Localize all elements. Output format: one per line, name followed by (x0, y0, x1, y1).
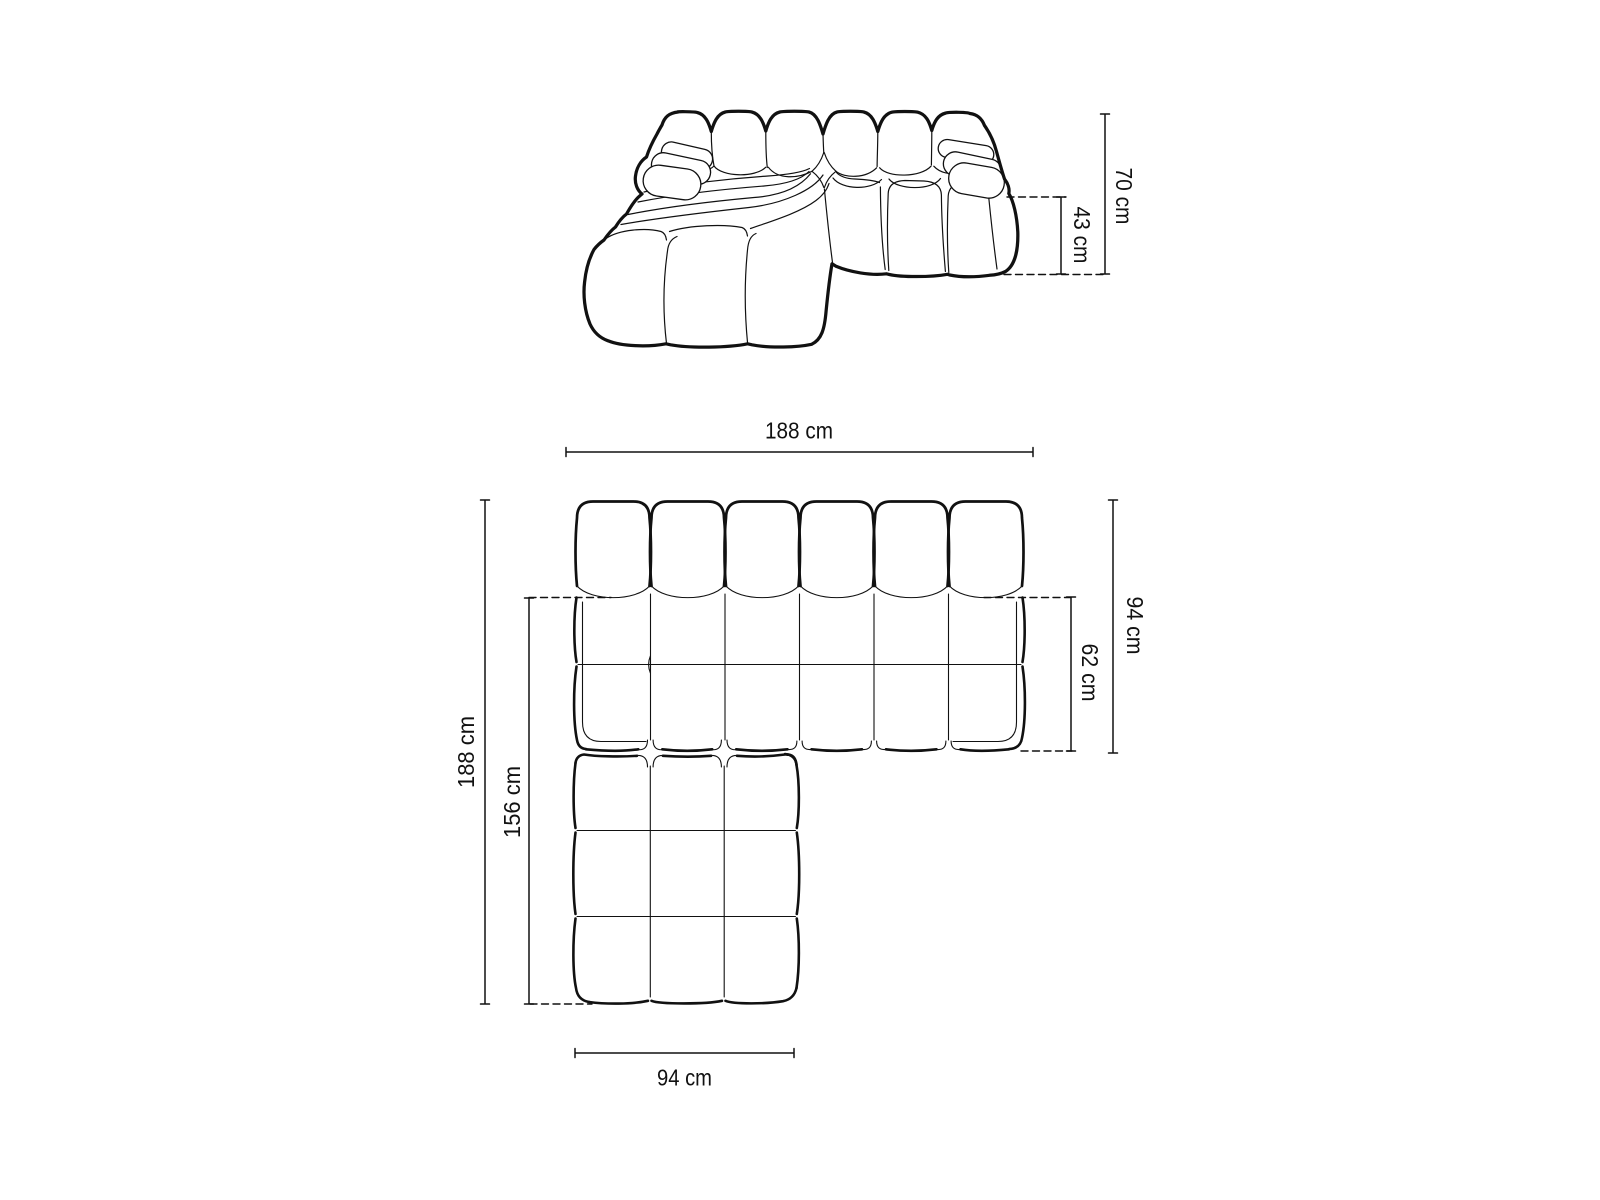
svg-text:62 cm: 62 cm (1077, 644, 1103, 702)
svg-text:94 cm: 94 cm (657, 1065, 712, 1091)
svg-text:188 cm: 188 cm (765, 418, 833, 444)
svg-text:43 cm: 43 cm (1069, 207, 1095, 264)
svg-text:156 cm: 156 cm (499, 766, 525, 838)
svg-text:188 cm: 188 cm (453, 716, 479, 788)
svg-text:94 cm: 94 cm (1122, 597, 1148, 655)
svg-text:70 cm: 70 cm (1111, 168, 1137, 225)
